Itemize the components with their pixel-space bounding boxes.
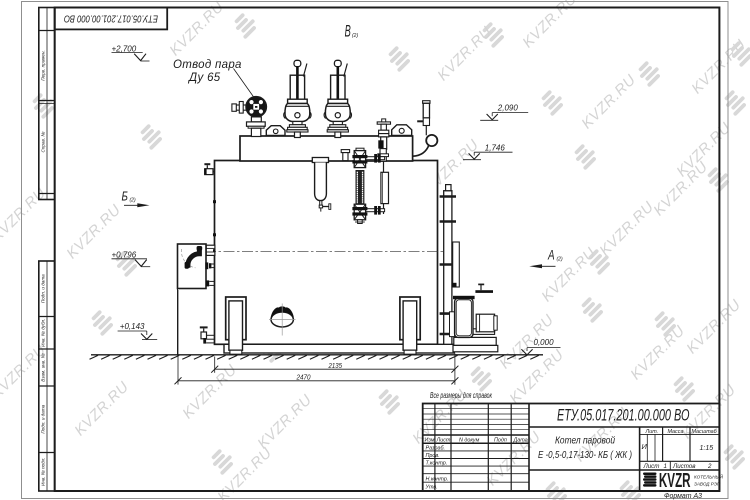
- svg-text:ЕТУ.05.017.201.00.000 ВО: ЕТУ.05.017.201.00.000 ВО: [64, 13, 158, 25]
- svg-text:Пров.: Пров.: [426, 453, 440, 459]
- svg-text:Подп. и дата: Подп. и дата: [41, 404, 46, 433]
- svg-text:Лист: Лист: [643, 463, 660, 470]
- svg-text:Разраб.: Разраб.: [426, 445, 446, 451]
- svg-text:ЗАВОД РЭП: ЗАВОД РЭП: [694, 481, 721, 486]
- svg-text:Масштаб: Масштаб: [692, 429, 718, 435]
- svg-text:Лист: Лист: [436, 438, 451, 444]
- svg-text:1,746: 1,746: [485, 144, 506, 153]
- svg-text:(2): (2): [352, 33, 358, 39]
- svg-text:+0,143: +0,143: [120, 322, 145, 331]
- svg-text:N докум: N докум: [459, 438, 480, 444]
- svg-text:1:15: 1:15: [700, 445, 714, 452]
- svg-text:И: И: [642, 442, 648, 451]
- svg-text:Отвод пара: Отвод пара: [173, 59, 242, 71]
- svg-text:Инв. № дубл.: Инв. № дубл.: [41, 319, 46, 347]
- svg-text:Все размеры для справок: Все размеры для справок: [430, 391, 492, 400]
- svg-text:Справ. №: Справ. №: [41, 132, 46, 153]
- svg-text:Утв.: Утв.: [425, 484, 438, 490]
- svg-text:+0,796: +0,796: [112, 251, 137, 260]
- svg-text:Дата: Дата: [513, 438, 528, 444]
- svg-text:В: В: [345, 22, 351, 40]
- svg-text:Подп: Подп: [494, 438, 507, 444]
- svg-text:Е -0,5-0,17-130- КБ ( ЖК ): Е -0,5-0,17-130- КБ ( ЖК ): [538, 449, 632, 461]
- svg-text:0,000: 0,000: [534, 338, 555, 347]
- svg-text:2470: 2470: [296, 373, 312, 382]
- svg-text:Перв. примен.: Перв. примен.: [41, 50, 46, 81]
- svg-text:KVZR: KVZR: [659, 469, 691, 492]
- svg-text:Т.контр.: Т.контр.: [426, 461, 448, 467]
- svg-text:А: А: [547, 247, 554, 262]
- svg-text:(2): (2): [130, 198, 136, 204]
- svg-text:КОТЕЛЬНЫЙ: КОТЕЛЬНЫЙ: [694, 472, 724, 479]
- svg-text:+2,700: +2,700: [112, 45, 137, 54]
- svg-text:(2): (2): [557, 257, 563, 263]
- svg-text:Масса: Масса: [668, 429, 684, 435]
- svg-text:Котел паровой: Котел паровой: [555, 435, 615, 447]
- svg-text:Инв. № подл.: Инв. № подл.: [41, 457, 46, 486]
- svg-text:ЕТУ.05.017.201.00.000 ВО: ЕТУ.05.017.201.00.000 ВО: [557, 406, 690, 425]
- svg-text:Подп. и дата: Подп. и дата: [41, 274, 46, 303]
- svg-text:Изм: Изм: [425, 438, 435, 444]
- svg-text:2135: 2135: [328, 361, 343, 370]
- svg-text:Формат А3: Формат А3: [664, 491, 703, 500]
- svg-text:2,090: 2,090: [497, 104, 519, 113]
- svg-text:Лит.: Лит.: [645, 429, 659, 435]
- svg-text:2: 2: [707, 463, 712, 470]
- svg-text:Взам. инв. №: Взам. инв. №: [41, 353, 46, 381]
- svg-text:Ду 65: Ду 65: [187, 72, 221, 84]
- svg-text:Н.контр.: Н.контр.: [426, 477, 449, 483]
- svg-text:Б: Б: [122, 188, 129, 203]
